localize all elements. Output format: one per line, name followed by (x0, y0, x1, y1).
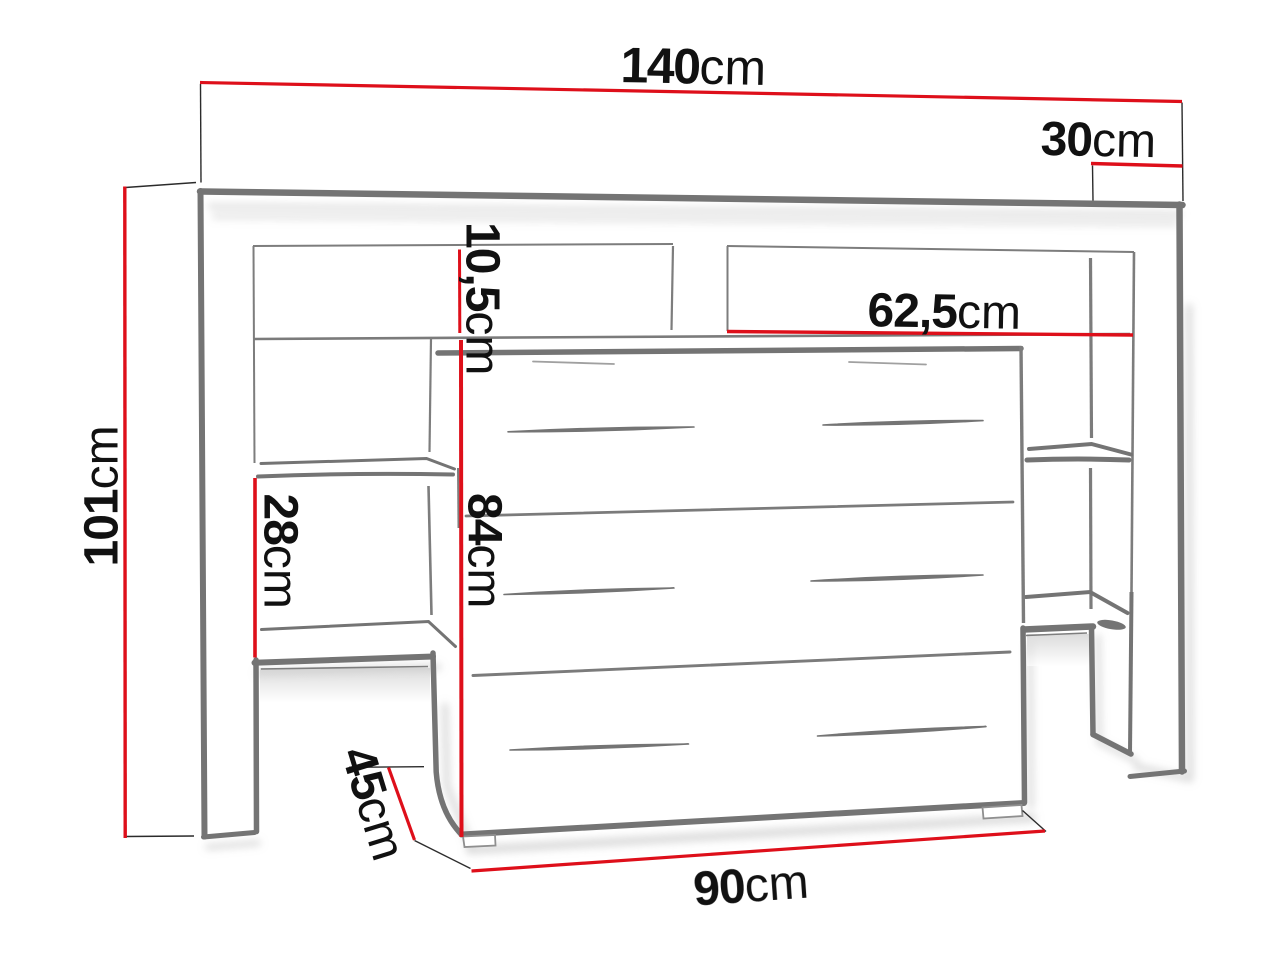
svg-text:10,5cm: 10,5cm (456, 222, 509, 375)
svg-text:84cm: 84cm (458, 493, 511, 608)
svg-text:90cm: 90cm (692, 856, 811, 917)
svg-text:62,5cm: 62,5cm (867, 284, 1021, 340)
svg-text:28cm: 28cm (254, 494, 307, 609)
svg-text:101cm: 101cm (76, 425, 129, 566)
svg-text:140cm: 140cm (620, 37, 767, 96)
svg-text:30cm: 30cm (1040, 113, 1156, 168)
